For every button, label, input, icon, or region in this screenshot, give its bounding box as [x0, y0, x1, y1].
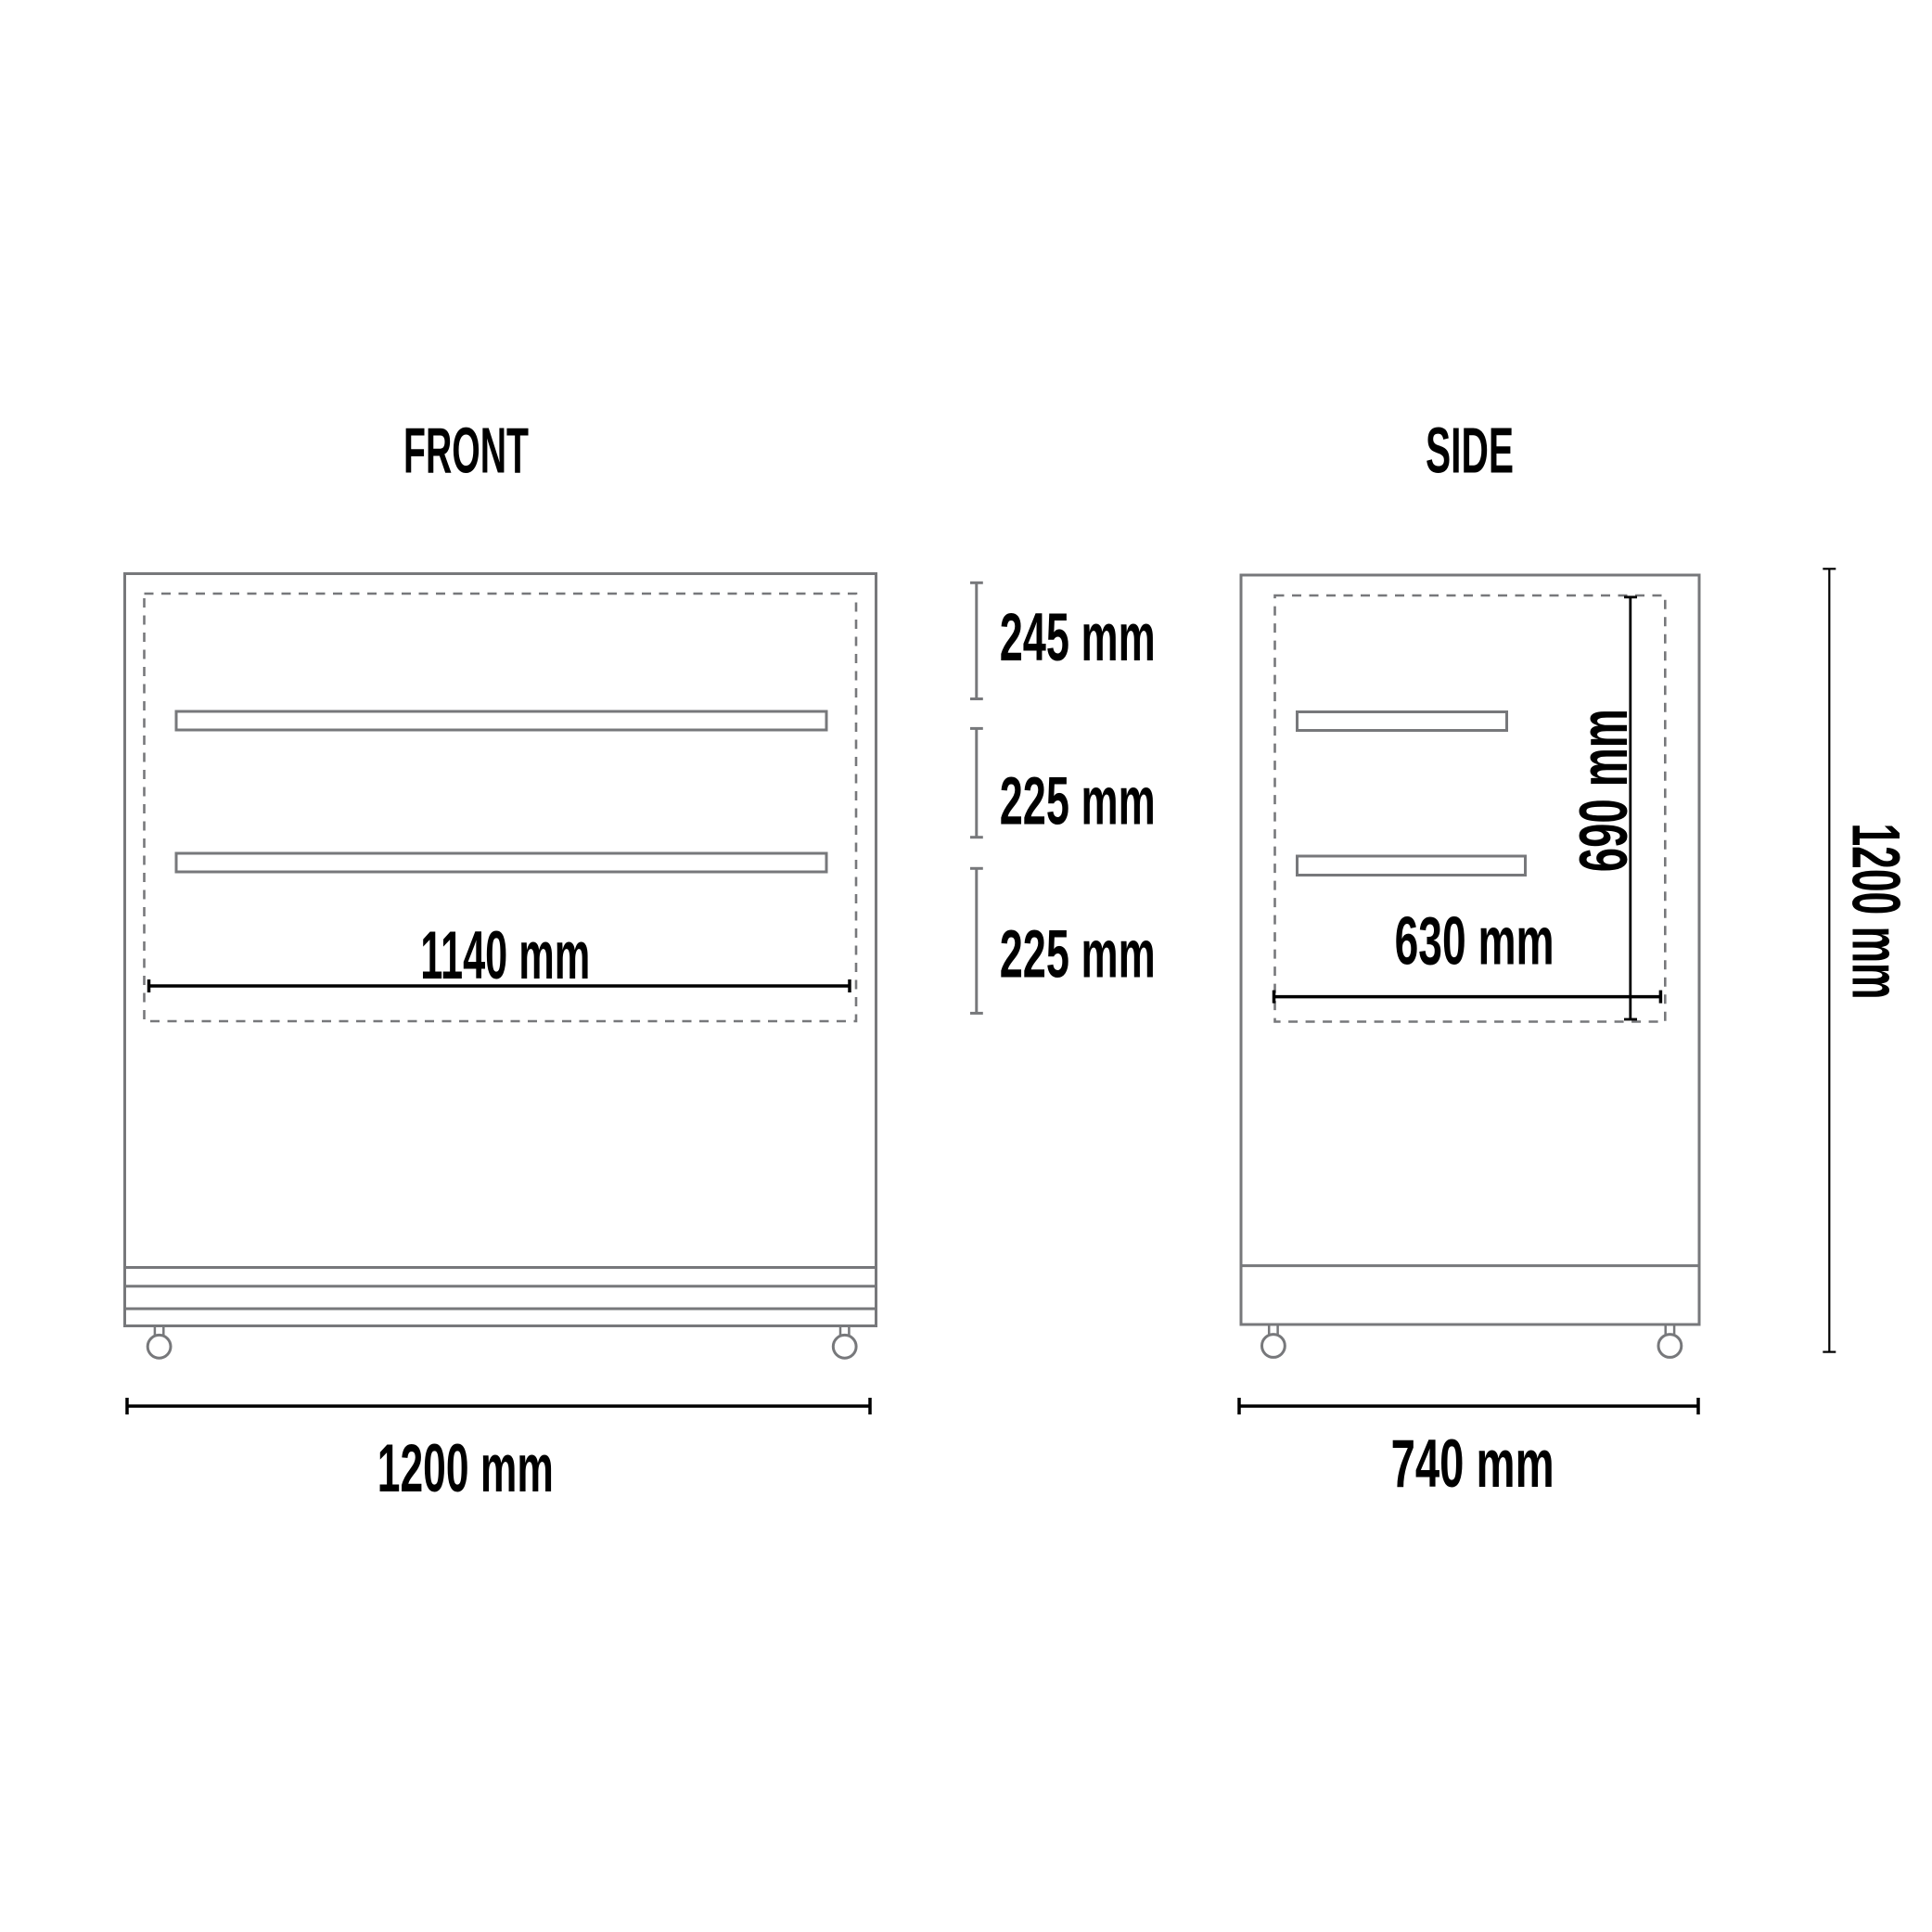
svg-text:SIDE: SIDE: [1426, 414, 1514, 486]
svg-text:740 mm: 740 mm: [1391, 1427, 1555, 1502]
svg-text:630 mm: 630 mm: [1395, 903, 1555, 979]
svg-text:FRONT: FRONT: [403, 414, 529, 486]
svg-text:245 mm: 245 mm: [1000, 600, 1156, 675]
svg-text:1200 mm: 1200 mm: [377, 1431, 554, 1506]
svg-text:690 mm: 690 mm: [1567, 709, 1642, 872]
svg-text:225 mm: 225 mm: [1000, 917, 1156, 992]
svg-text:1140 mm: 1140 mm: [420, 918, 590, 993]
svg-text:1200 mm: 1200 mm: [1837, 824, 1913, 1000]
svg-text:225 mm: 225 mm: [1000, 764, 1156, 839]
